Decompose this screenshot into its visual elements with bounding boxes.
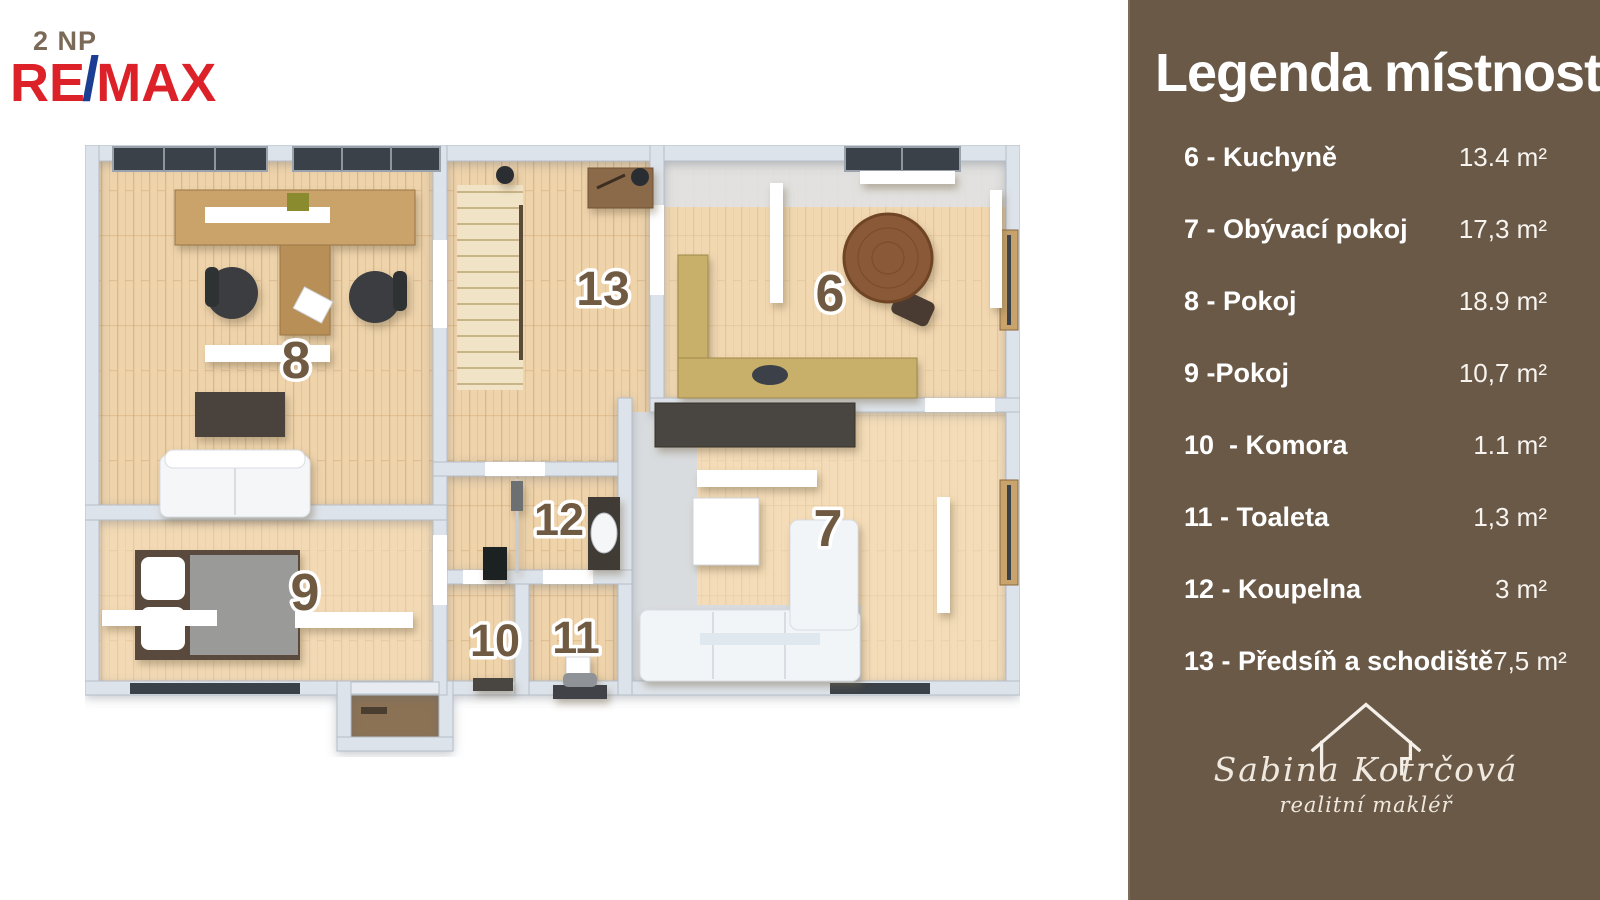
room-area: 10,7 m² <box>1459 358 1547 389</box>
balcony-door <box>351 682 439 694</box>
room-label-8: 8 <box>282 332 311 390</box>
room-label-10: 10 <box>470 615 520 666</box>
desk-plant <box>287 193 309 211</box>
wall-living-left <box>618 398 632 695</box>
bath-sink <box>591 513 617 553</box>
legend-title: Legenda místností <box>1155 42 1600 104</box>
room-name: 11 - Toaleta <box>1184 502 1329 533</box>
balcony-floor <box>351 695 439 737</box>
remax-logo: RE / MAX <box>10 56 216 112</box>
kitchen-sink <box>752 365 788 385</box>
toilet-tank <box>553 685 607 699</box>
window-room8-right <box>293 147 440 171</box>
shower-column <box>511 481 523 511</box>
wall-outer-left <box>85 145 99 695</box>
window-living-bottom <box>830 683 930 694</box>
door-living <box>925 398 995 412</box>
agent-name: Sabina Kotrčová <box>1130 750 1600 789</box>
page: 2 NP RE / MAX <box>0 0 1600 900</box>
legend-row: 6 - Kuchyně 13.4 m² <box>1184 140 1547 174</box>
legend-row: 9 -Pokoj 10,7 m² <box>1184 356 1547 390</box>
ceiling-light <box>631 168 649 186</box>
office-chair-back <box>205 267 219 307</box>
window-marker-strip <box>860 171 955 184</box>
room-name: 6 - Kuchyně <box>1184 142 1337 173</box>
bed-blanket <box>190 555 298 655</box>
room-name: 12 - Koupelna <box>1184 574 1361 605</box>
room-area: 18.9 m² <box>1459 286 1547 317</box>
wall-balcony-bottom <box>337 737 453 751</box>
legend-row: 10 - Komora 1.1 m² <box>1184 428 1547 462</box>
room-area: 13.4 m² <box>1459 142 1547 173</box>
window-marker-strip <box>990 190 1002 308</box>
balcony-mat <box>361 707 387 714</box>
legend-row: 12 - Koupelna 3 m² <box>1184 572 1547 606</box>
legend-row: 8 - Pokoj 18.9 m² <box>1184 284 1547 318</box>
remax-slash-icon: / <box>82 52 99 108</box>
door-bathroom <box>485 462 545 476</box>
sofa-throw <box>700 633 820 645</box>
room-area: 1.1 m² <box>1473 430 1547 461</box>
window-room9-bottom <box>130 683 300 694</box>
room-label-11: 11 <box>552 612 600 663</box>
wall-hall-left <box>433 145 447 695</box>
tv-board <box>195 392 285 437</box>
room-label-7: 7 <box>814 500 843 558</box>
wall-outer-right <box>1006 145 1020 695</box>
legend-row: 7 - Obývací pokoj 17,3 m² <box>1184 212 1547 246</box>
door-room9 <box>433 535 447 605</box>
floorplan: 8 13 6 7 9 12 10 11 <box>85 145 1020 757</box>
washer <box>483 547 507 580</box>
office-chair-back <box>393 271 407 311</box>
room-label-13: 13 <box>576 263 629 316</box>
legend-row: 13 - Předsíň a schodiště 7,5 m² <box>1184 644 1547 678</box>
rug-strip <box>205 345 330 362</box>
toilet-seat <box>563 673 597 687</box>
agent-signature: Sabina Kotrčová realitní makléř <box>1130 698 1600 817</box>
room-area: 1,3 m² <box>1473 502 1547 533</box>
remax-re: RE <box>10 56 85 110</box>
door-kitchen <box>650 205 664 295</box>
tv-cabinet <box>655 403 855 447</box>
room-name: 13 - Předsíň a schodiště <box>1184 646 1493 677</box>
storage-shelf <box>473 678 513 691</box>
desk-paper-strip <box>205 207 330 223</box>
door-room8 <box>433 240 447 328</box>
door-marker-strip <box>937 497 950 613</box>
room-area: 3 m² <box>1495 574 1547 605</box>
room-label-6: 6 <box>816 265 845 323</box>
ceiling-light <box>496 166 514 184</box>
legend-rows: 6 - Kuchyně 13.4 m² 7 - Obývací pokoj 17… <box>1184 140 1547 716</box>
door-toilet <box>543 570 593 584</box>
staircase <box>457 185 523 390</box>
room-name: 7 - Obývací pokoj <box>1184 214 1408 245</box>
agent-role: realitní makléř <box>1130 793 1600 817</box>
room-area: 7,5 m² <box>1493 646 1567 677</box>
room-area: 17,3 m² <box>1459 214 1547 245</box>
legend-sidebar: Legenda místností 6 - Kuchyně 13.4 m² 7 … <box>1128 0 1600 900</box>
door-marker-strip <box>770 183 783 303</box>
rug-strip <box>697 470 817 487</box>
legend-row: 11 - Toaleta 1,3 m² <box>1184 500 1547 534</box>
remax-max: MAX <box>96 56 216 110</box>
room-name: 9 -Pokoj <box>1184 358 1289 389</box>
window-room8-left <box>113 147 267 171</box>
room-label-9: 9 <box>291 564 320 622</box>
rug-strip <box>102 610 217 626</box>
room-name: 8 - Pokoj <box>1184 286 1297 317</box>
dining-table <box>844 214 932 302</box>
pillow <box>141 557 185 600</box>
room-name: 10 - Komora <box>1184 430 1348 461</box>
room-label-12: 12 <box>534 494 584 545</box>
sofa-back-cushions <box>165 450 305 468</box>
coffee-table <box>693 498 759 565</box>
kitchen-counter-bottom <box>678 358 917 398</box>
